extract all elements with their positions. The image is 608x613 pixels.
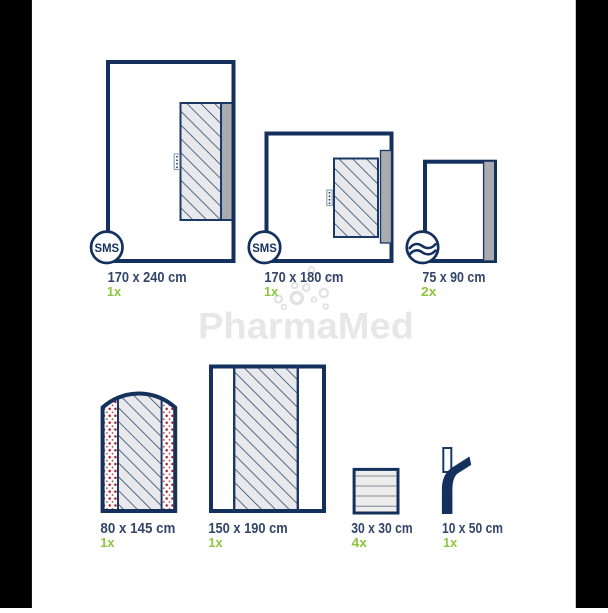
svg-text:1x: 1x	[443, 536, 457, 550]
svg-text:1x: 1x	[264, 285, 278, 299]
svg-text:SMS: SMS	[252, 241, 277, 255]
svg-text:150 x 190 cm: 150 x 190 cm	[208, 521, 287, 537]
svg-text:1x: 1x	[208, 536, 222, 550]
svg-text:1x: 1x	[107, 285, 121, 299]
svg-text:1x: 1x	[100, 536, 114, 550]
svg-text:2x: 2x	[421, 285, 437, 299]
svg-text:30 x 30 cm: 30 x 30 cm	[351, 521, 412, 537]
svg-text:SMS: SMS	[95, 241, 120, 255]
svg-text:170 x 240 cm: 170 x 240 cm	[108, 270, 187, 286]
svg-text:75 x 90 cm: 75 x 90 cm	[422, 270, 485, 286]
svg-text:170 x 180 cm: 170 x 180 cm	[264, 270, 343, 286]
svg-text:4x: 4x	[352, 536, 368, 550]
svg-text:10 x 50 cm: 10 x 50 cm	[442, 521, 503, 537]
svg-text:80 x 145 cm: 80 x 145 cm	[100, 521, 175, 537]
svg-text:PharmaMed: PharmaMed	[198, 306, 414, 347]
